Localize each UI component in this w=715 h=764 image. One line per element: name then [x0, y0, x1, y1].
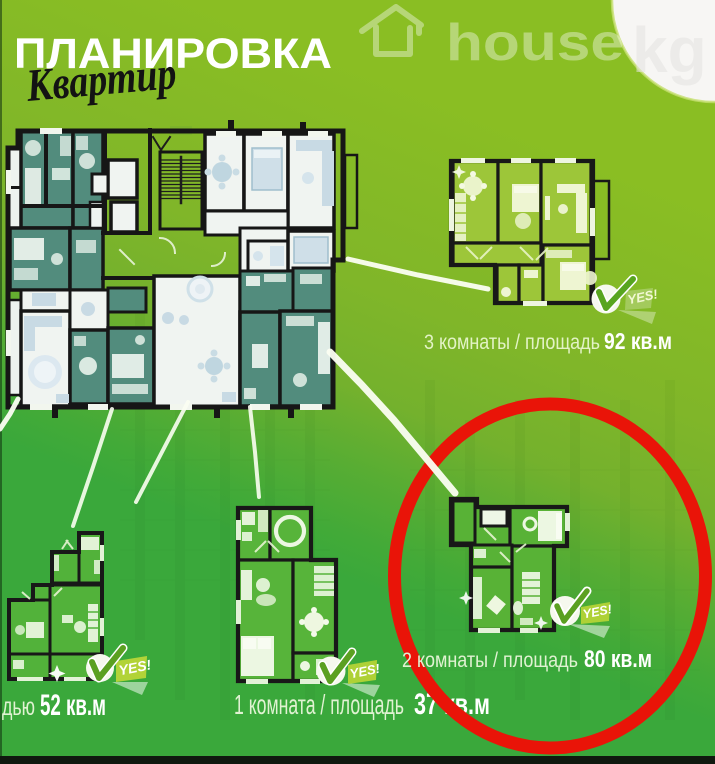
svg-text:house: house [446, 14, 624, 72]
svg-text:2 комнаты / площадь: 2 комнаты / площадь [402, 649, 578, 672]
svg-text:kg: kg [632, 14, 707, 86]
svg-text:52 кв.м: 52 кв.м [40, 689, 106, 722]
svg-text:1 комната / площадь: 1 комната / площадь [234, 689, 404, 720]
svg-text:дью: дью [2, 693, 35, 721]
svg-text:3 комнаты / площадь: 3 комнаты / площадь [424, 331, 600, 354]
svg-text:80 кв.м: 80 кв.м [584, 646, 652, 673]
svg-text:92 кв.м: 92 кв.м [604, 328, 672, 354]
